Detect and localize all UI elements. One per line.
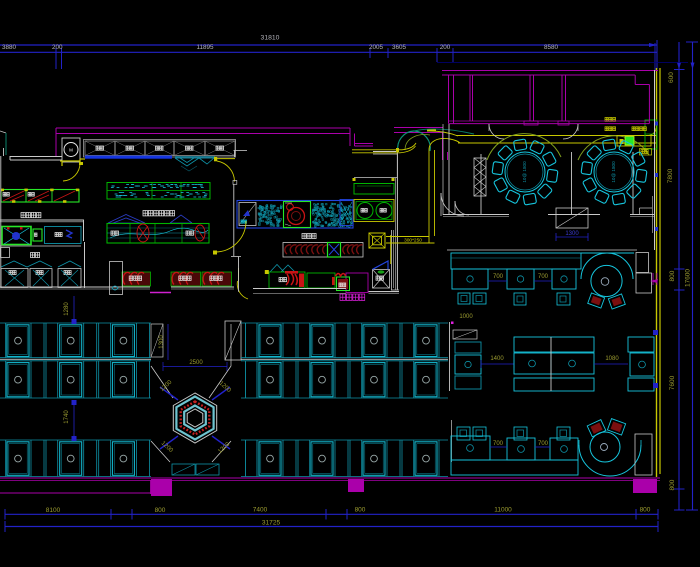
svg-text:1000: 1000 bbox=[459, 314, 473, 320]
svg-text:1300: 1300 bbox=[159, 335, 165, 349]
svg-text:31810: 31810 bbox=[261, 35, 280, 42]
svg-text:1740: 1740 bbox=[64, 410, 70, 424]
svg-text:800: 800 bbox=[669, 270, 676, 281]
svg-text:10@ 1800: 10@ 1800 bbox=[611, 161, 616, 183]
svg-text:800: 800 bbox=[640, 507, 651, 514]
svg-text:800: 800 bbox=[355, 507, 366, 514]
svg-text:1300: 1300 bbox=[565, 231, 579, 237]
svg-text:700: 700 bbox=[538, 274, 549, 280]
svg-text:7800: 7800 bbox=[667, 168, 674, 183]
svg-text:7600: 7600 bbox=[669, 375, 676, 390]
svg-text:8580: 8580 bbox=[544, 44, 559, 51]
svg-text:17600: 17600 bbox=[685, 269, 692, 287]
svg-text:1080: 1080 bbox=[605, 356, 619, 362]
svg-text:800: 800 bbox=[669, 479, 676, 490]
svg-text:8100: 8100 bbox=[46, 507, 61, 514]
svg-text:700: 700 bbox=[493, 441, 504, 447]
svg-text:600: 600 bbox=[668, 72, 675, 83]
svg-text:700: 700 bbox=[493, 274, 504, 280]
svg-text:3880: 3880 bbox=[2, 44, 17, 51]
svg-text:31725: 31725 bbox=[262, 520, 281, 527]
svg-text:11000: 11000 bbox=[494, 507, 512, 514]
svg-text:300*250: 300*250 bbox=[404, 238, 422, 244]
svg-text:200: 200 bbox=[440, 44, 451, 51]
svg-text:M: M bbox=[69, 148, 73, 153]
svg-text:700: 700 bbox=[538, 441, 549, 447]
svg-text:10@ 1800: 10@ 1800 bbox=[522, 161, 527, 183]
svg-text:3605: 3605 bbox=[392, 44, 407, 51]
svg-text:2500: 2500 bbox=[189, 360, 203, 366]
svg-text:800: 800 bbox=[155, 507, 166, 514]
svg-text:7400: 7400 bbox=[253, 507, 268, 514]
svg-text:1280: 1280 bbox=[64, 302, 70, 316]
svg-text:2005: 2005 bbox=[369, 44, 384, 51]
svg-text:200: 200 bbox=[52, 44, 63, 51]
svg-text:1400: 1400 bbox=[490, 356, 504, 362]
svg-text:11895: 11895 bbox=[196, 44, 214, 51]
